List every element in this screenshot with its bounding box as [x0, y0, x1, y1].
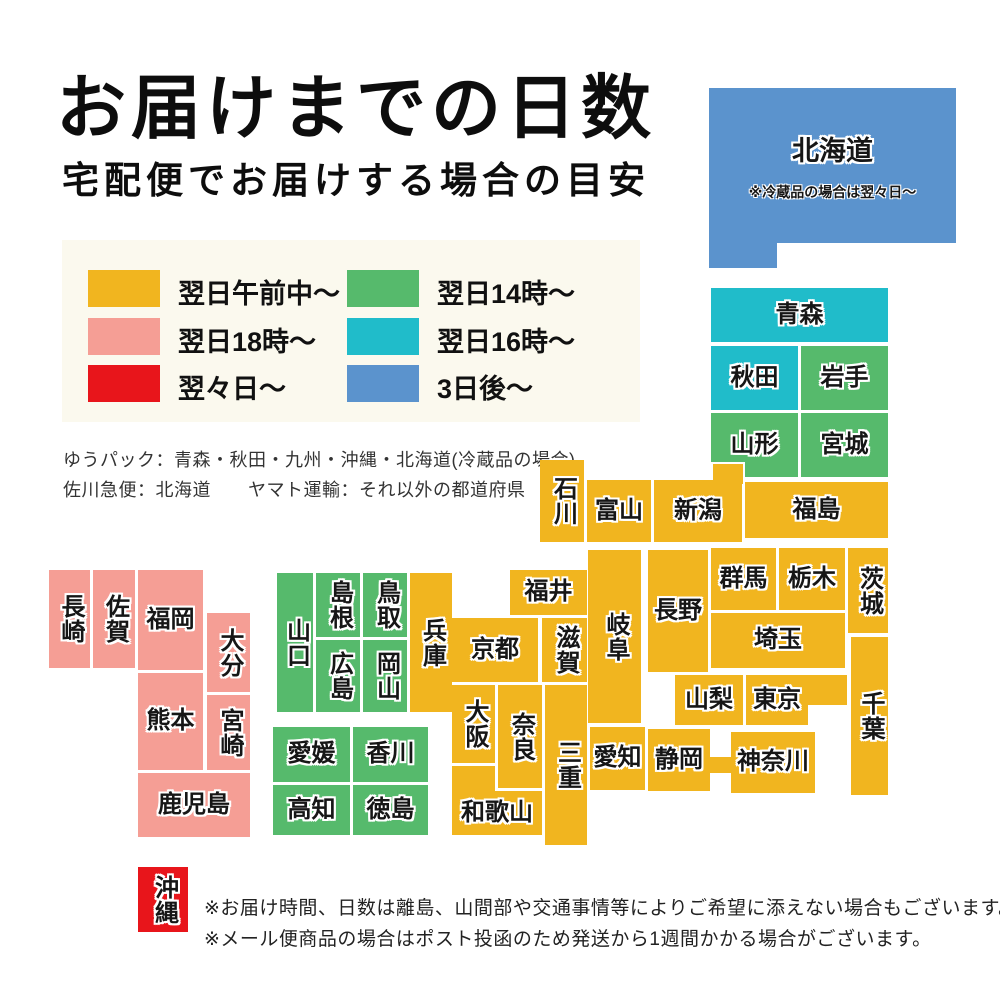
- pref-block: 広島: [316, 640, 360, 712]
- pref-label: 愛媛: [288, 742, 336, 767]
- pref-label: 栃木: [788, 567, 836, 592]
- pref-label: 宮崎: [216, 708, 241, 758]
- pref-block: 香川: [353, 727, 428, 782]
- pref-label: 福岡: [147, 608, 195, 633]
- pref-label: 奈良: [508, 712, 533, 762]
- legend-label: 翌々日〜: [178, 367, 286, 406]
- pref-block: 島根: [316, 573, 360, 637]
- pref-label: 岐阜: [602, 612, 627, 662]
- legend-swatch: [88, 318, 160, 355]
- pref-label: 島根: [326, 580, 351, 630]
- pref-label: 宮城: [821, 433, 869, 458]
- pref-label: 埼玉: [754, 628, 802, 653]
- pref-label: 青森: [776, 303, 824, 328]
- pref-label: 石川: [550, 476, 575, 526]
- legend-swatch: [347, 318, 419, 355]
- pref-label: 香川: [367, 742, 415, 767]
- pref-block: 兵庫: [410, 573, 452, 712]
- page-subtitle: 宅配便でお届けする場合の目安: [62, 150, 650, 204]
- carrier-note-2: 佐川急便：北海道 ヤマト運輸：それ以外の都道府県: [63, 476, 526, 502]
- hokkaido-block: 北海道 ※冷蔵品の場合は翌々日〜: [709, 88, 956, 243]
- pref-block: 宮城: [801, 413, 888, 477]
- pref-label: 沖縄: [151, 875, 176, 925]
- legend-label: 翌日16時〜: [437, 320, 575, 359]
- pref-block: 岩手: [801, 346, 888, 410]
- pref-label: 新潟: [674, 499, 722, 524]
- pref-label: 滋賀: [552, 625, 577, 675]
- pref-block: 山口: [277, 573, 313, 712]
- pref-label: 岩手: [821, 366, 869, 391]
- pref-label: 福井: [525, 580, 573, 605]
- pref-block: 埼玉: [711, 613, 845, 668]
- pref-label: 長崎: [57, 594, 82, 644]
- pref-block: 福井: [510, 570, 587, 615]
- pref-block: 静岡: [648, 729, 710, 791]
- pref-label: 茨城: [856, 566, 881, 616]
- pref-block: 千葉: [851, 637, 888, 795]
- pref-block: 新潟: [654, 480, 742, 542]
- legend-swatch: [347, 365, 419, 402]
- pref-block: 宮崎: [207, 695, 250, 770]
- pref-block: 福島: [745, 482, 888, 538]
- legend-label: 翌日18時〜: [178, 320, 316, 359]
- pref-label: 山梨: [685, 688, 733, 713]
- pref-block: 熊本: [138, 673, 203, 770]
- pref-block: 東京: [746, 675, 808, 725]
- pref-label: 群馬: [720, 567, 768, 592]
- delivery-days-infographic: お届けまでの日数 宅配便でお届けする場合の目安 翌日午前中〜翌日18時〜翌々日〜…: [0, 0, 1000, 1000]
- pref-block: 茨城: [848, 548, 888, 633]
- hokkaido-label: 北海道: [792, 129, 873, 168]
- pref-block: 愛媛: [273, 727, 350, 782]
- carrier-note-1: ゆうパック：青森・秋田・九州・沖縄・北海道(冷蔵品の場合): [63, 446, 576, 472]
- pref-block: 長崎: [49, 570, 90, 668]
- pref-label: 千葉: [857, 691, 882, 741]
- map-shape: [706, 757, 734, 773]
- pref-block: 山梨: [675, 675, 743, 725]
- pref-label: 福島: [793, 498, 841, 523]
- pref-block: 愛知: [590, 727, 645, 790]
- pref-label: 山口: [283, 618, 308, 668]
- pref-block: 長野: [648, 550, 708, 672]
- pref-label: 秋田: [731, 366, 779, 391]
- hokkaido-note: ※冷蔵品の場合は翌々日〜: [749, 182, 917, 202]
- pref-block: 青森: [711, 288, 888, 342]
- pref-block: 大分: [207, 613, 250, 692]
- pref-label: 熊本: [147, 709, 195, 734]
- pref-label: 鹿児島: [158, 793, 230, 818]
- pref-label: 大分: [216, 628, 241, 678]
- pref-block: 栃木: [779, 548, 845, 610]
- pref-block: 鹿児島: [138, 773, 250, 837]
- pref-block: 奈良: [498, 685, 542, 788]
- pref-label: 長野: [654, 599, 702, 624]
- pref-label: 静岡: [655, 748, 703, 773]
- pref-block: 和歌山: [452, 791, 542, 835]
- pref-label: 岡山: [373, 651, 398, 701]
- pref-block: 三重: [545, 685, 587, 845]
- pref-label: 和歌山: [461, 801, 533, 826]
- pref-block: 京都: [452, 618, 538, 682]
- pref-label: 神奈川: [737, 750, 809, 775]
- footer-note-2: ※メール便商品の場合はポスト投函のため発送から1週間かかる場合がございます。: [204, 924, 932, 951]
- pref-block: 大阪: [452, 685, 495, 763]
- footer-note-1: ※お届け時間、日数は離島、山間部や交通事情等によりご希望に添えない場合もございま…: [204, 893, 1000, 920]
- pref-label: 愛知: [594, 746, 642, 771]
- legend-swatch: [88, 270, 160, 307]
- pref-block: 沖縄: [138, 867, 188, 932]
- legend-label: 翌日午前中〜: [178, 272, 340, 311]
- pref-label: 大阪: [461, 699, 486, 749]
- hokkaido-tab-shape: [709, 240, 777, 268]
- pref-label: 徳島: [367, 798, 415, 823]
- pref-block: 神奈川: [731, 732, 815, 793]
- map-shape: [806, 675, 847, 705]
- legend-swatch: [88, 365, 160, 402]
- pref-block: 佐賀: [93, 570, 135, 668]
- pref-label: 鳥取: [373, 580, 398, 630]
- pref-block: 滋賀: [542, 618, 587, 682]
- pref-block: 群馬: [711, 548, 776, 610]
- pref-block: 富山: [587, 480, 651, 542]
- pref-block: 石川: [540, 460, 584, 542]
- pref-block: 鳥取: [363, 573, 407, 637]
- pref-label: 広島: [326, 651, 351, 701]
- pref-label: 高知: [288, 798, 336, 823]
- legend-swatch: [347, 270, 419, 307]
- pref-label: 山形: [731, 433, 779, 458]
- pref-label: 東京: [753, 688, 801, 713]
- legend-panel: 翌日午前中〜翌日18時〜翌々日〜翌日14時〜翌日16時〜3日後〜: [62, 240, 640, 422]
- pref-block: 岡山: [363, 640, 407, 712]
- pref-block: 高知: [273, 785, 350, 835]
- legend-label: 3日後〜: [437, 367, 533, 406]
- pref-label: 京都: [471, 638, 519, 663]
- pref-label: 富山: [595, 499, 643, 524]
- pref-block: 福岡: [138, 570, 203, 670]
- pref-block: 徳島: [353, 785, 428, 835]
- pref-block: 秋田: [711, 346, 798, 410]
- pref-block: 岐阜: [588, 550, 641, 723]
- pref-label: 三重: [554, 740, 579, 790]
- legend-label: 翌日14時〜: [437, 272, 575, 311]
- page-title: お届けまでの日数: [56, 52, 656, 153]
- pref-label: 兵庫: [419, 618, 444, 668]
- pref-label: 佐賀: [102, 594, 127, 644]
